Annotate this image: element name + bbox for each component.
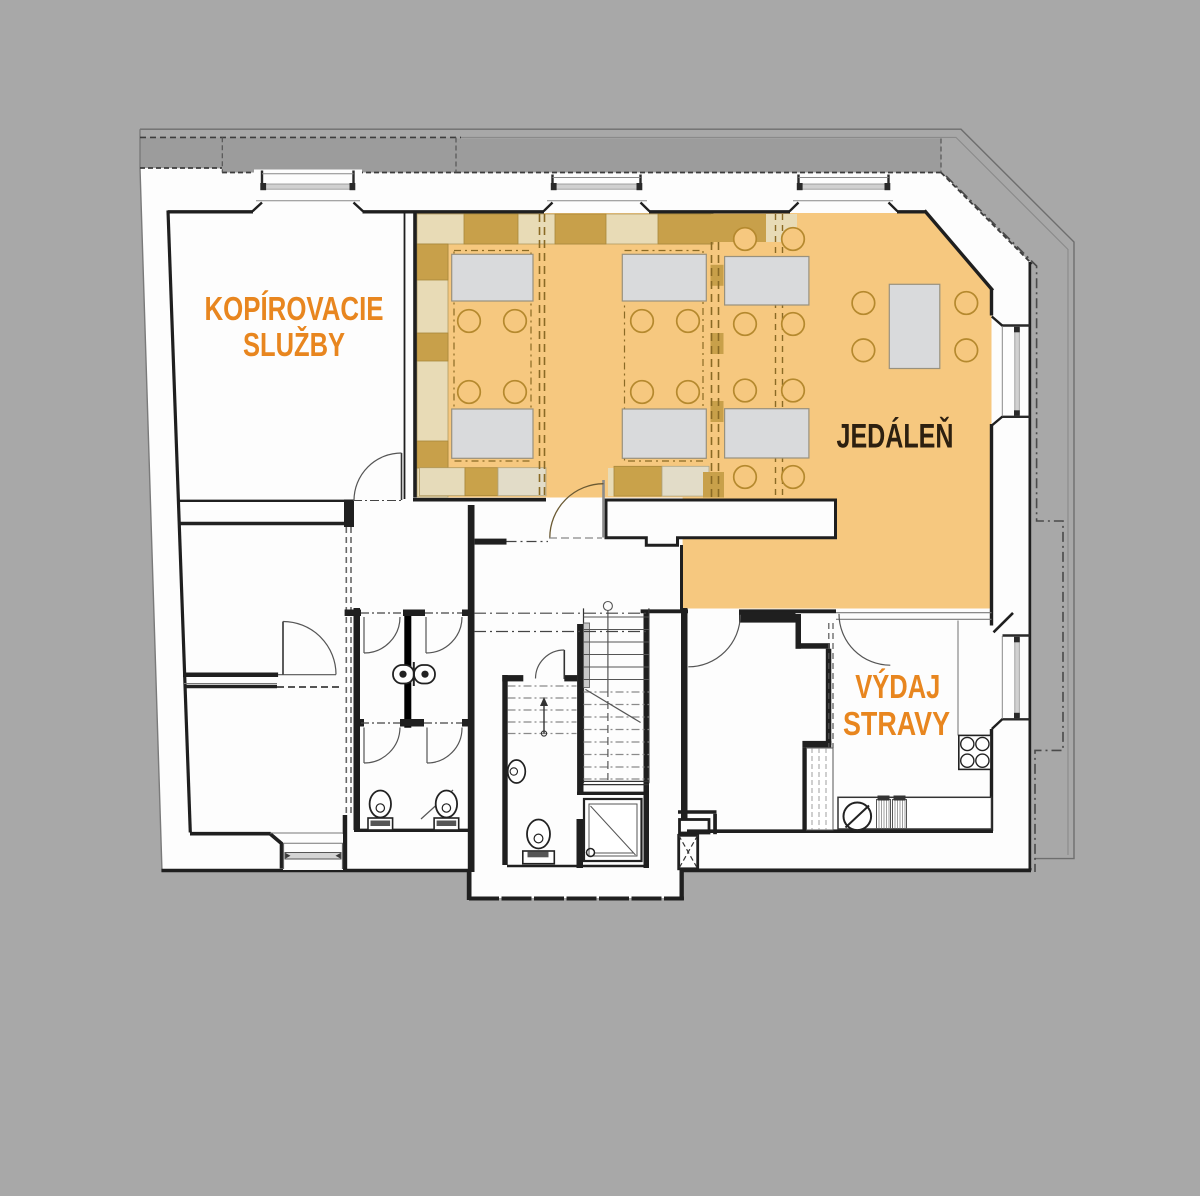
svg-text:STRAVY: STRAVY [843, 705, 950, 742]
svg-text:VÝDAJ: VÝDAJ [855, 668, 940, 705]
svg-text:JEDÁLEŇ: JEDÁLEŇ [837, 418, 954, 456]
svg-text:SLUŽBY: SLUŽBY [243, 326, 345, 363]
svg-text:KOPÍROVACIE: KOPÍROVACIE [205, 290, 384, 327]
